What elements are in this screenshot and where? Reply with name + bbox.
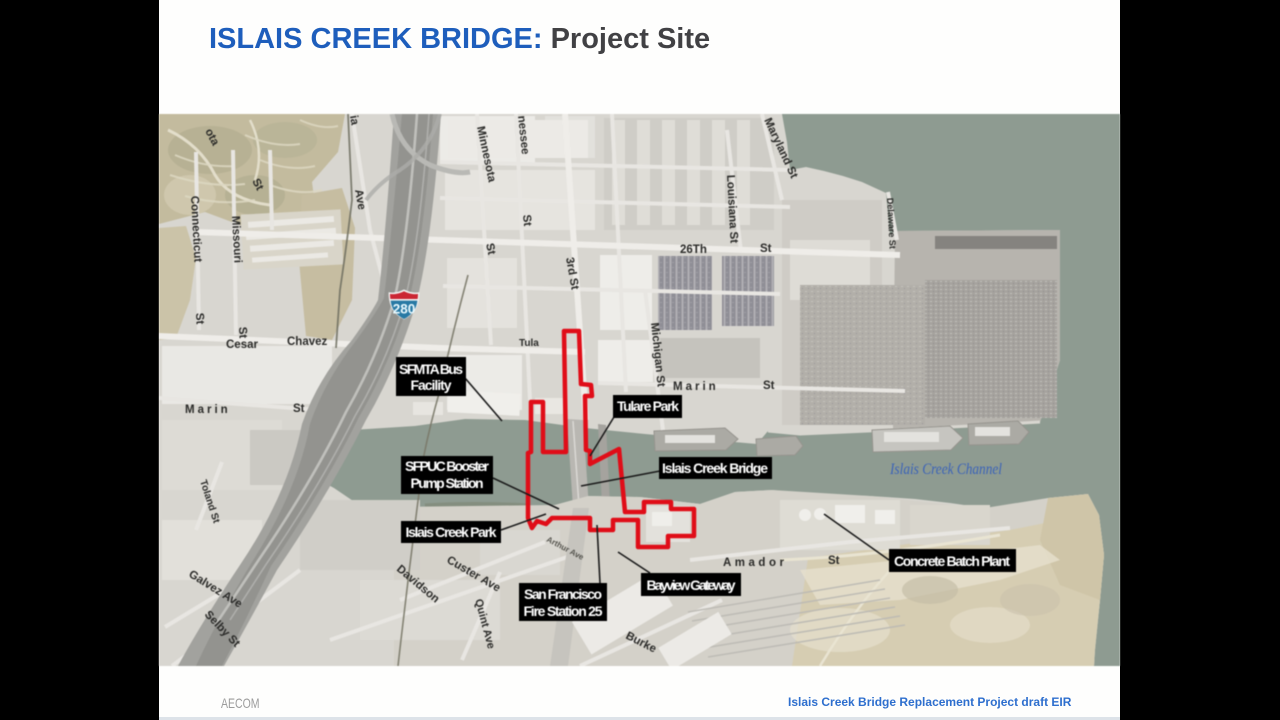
svg-text:280: 280 [393,302,416,317]
svg-text:Concrete Batch Plant: Concrete Batch Plant [894,553,1010,569]
svg-text:St: St [236,327,249,339]
svg-text:SFMTA Bus: SFMTA Bus [399,361,463,377]
svg-text:St: St [193,313,206,325]
svg-text:Facility: Facility [411,377,452,393]
svg-text:SFPUC Booster: SFPUC Booster [405,458,490,474]
svg-text:St: St [293,403,305,415]
svg-text:Marin: Marin [185,404,231,416]
svg-text:Pump Station: Pump Station [411,475,484,491]
svg-text:Chavez: Chavez [287,336,328,348]
svg-text:Amador: Amador [723,557,787,569]
svg-text:San Francisco: San Francisco [524,586,602,602]
svg-text:Tulare Park: Tulare Park [617,398,679,414]
svg-text:Marin: Marin [673,381,719,393]
svg-text:St: St [763,380,775,392]
svg-text:St: St [520,214,533,227]
svg-text:Tula: Tula [519,338,539,349]
svg-text:Islais Creek Channel: Islais Creek Channel [889,461,1002,478]
svg-text:St: St [760,243,772,255]
svg-text:Islais Creek Park: Islais Creek Park [406,524,497,540]
svg-text:Islais Creek Bridge: Islais Creek Bridge [662,460,768,476]
svg-text:St: St [828,555,840,567]
svg-text:26Th: 26Th [680,244,707,256]
svg-text:Missouri: Missouri [229,216,243,264]
svg-text:Cesar: Cesar [226,339,258,351]
svg-text:Bayview Gateway: Bayview Gateway [647,577,736,593]
svg-text:Fire Station 25: Fire Station 25 [524,603,603,619]
